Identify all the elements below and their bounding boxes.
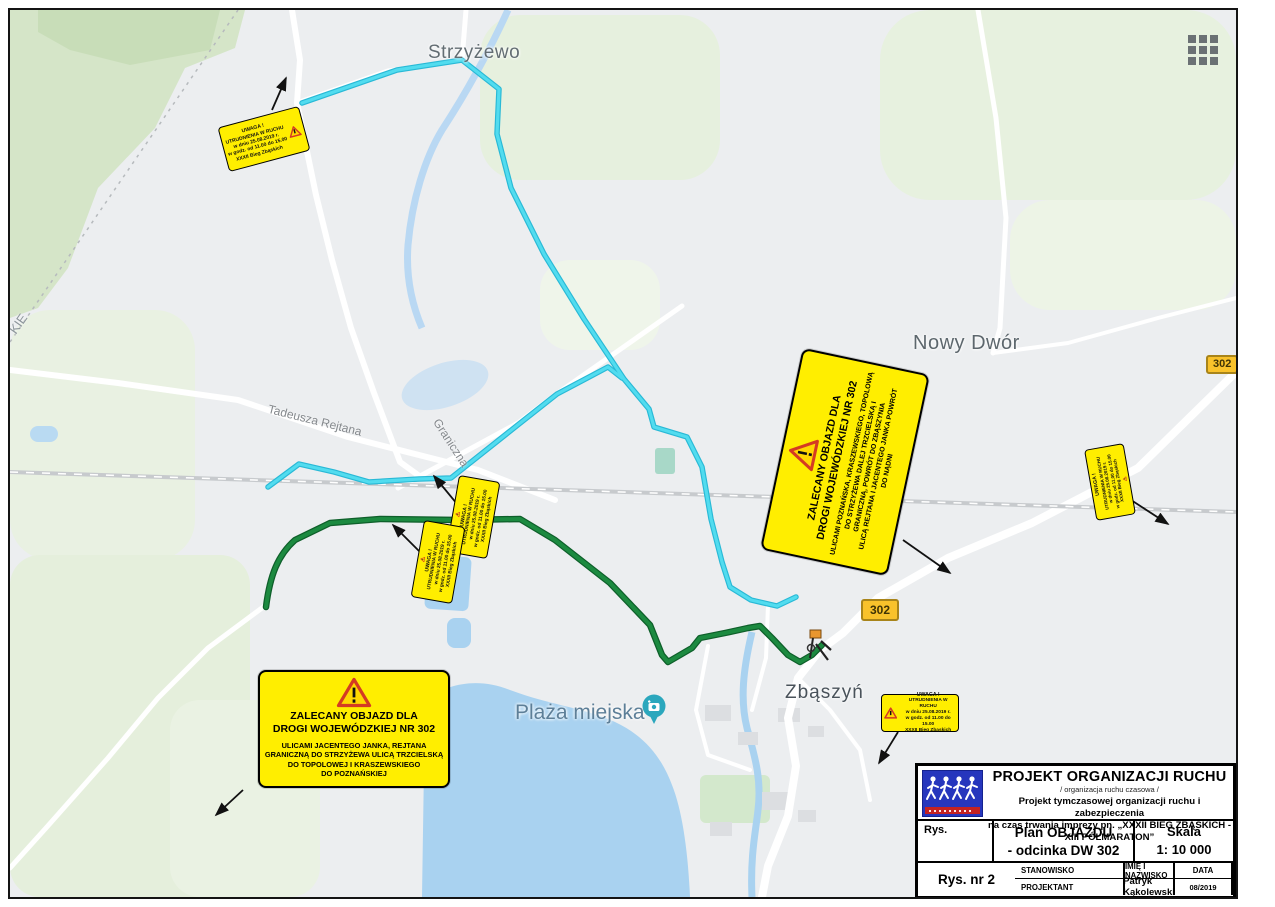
road-shield-302-north: 302	[1206, 355, 1238, 374]
project-subtitle: / organizacja ruchu czasowa /	[986, 785, 1233, 794]
sign-title-line: DROGI WOJEWÓDZKIEJ NR 302	[260, 723, 448, 736]
sign-body-line: DO TOPOLOWEJ I KRASZEWSKIEGO	[260, 760, 448, 770]
small-warning-sign-5: UWAGA ! UTRUDNIENIA W RUCHU w dniu 25.08…	[881, 694, 959, 732]
project-desc-line: Projekt tymczasowej organizacji ruchu i …	[986, 796, 1233, 820]
place-label-strzyzewo: Strzyżewo	[428, 42, 520, 64]
rys-label: Rys.	[918, 821, 994, 861]
warning-triangle-icon	[884, 707, 897, 719]
col-position-header: STANOWISKO	[1015, 863, 1125, 879]
map-frame: Strzyżewo Nowy Dwór Zbąszyń Plaża miejsk…	[8, 8, 1238, 899]
title-block-header: PROJEKT ORGANIZACJI RUCHU / organizacja …	[918, 766, 1233, 821]
designer-name: Patryk Kąkolewski	[1125, 879, 1175, 895]
role-cell: PROJEKTANT	[1015, 879, 1125, 895]
sign-body-line: ULICAMI JACENTEGO JANKA, REJTANA	[260, 741, 448, 751]
warning-triangle-icon	[785, 433, 820, 472]
road-shield-302-town: 302	[861, 599, 899, 621]
apps-grid-icon[interactable]	[1188, 35, 1218, 65]
place-label-zbaszyn: Zbąszyń	[785, 682, 864, 704]
camera-pin-icon[interactable]	[641, 694, 667, 726]
sign-body-line: DO POZNAŃSKIEJ	[260, 769, 448, 779]
traffic-plan-page: Strzyżewo Nowy Dwór Zbąszyń Plaża miejsk…	[0, 0, 1275, 907]
warning-triangle-icon	[1122, 474, 1128, 486]
runners-logo	[922, 770, 983, 817]
place-label-nowy-dwor: Nowy Dwór	[913, 332, 1020, 355]
project-title: PROJEKT ORGANIZACJI RUCHU	[986, 769, 1233, 785]
sign-title-line: ZALECANY OBJAZD DLA	[260, 710, 448, 723]
detour-sign-southwest: ZALECANY OBJAZD DLA DROGI WOJEWÓDZKIEJ N…	[258, 670, 450, 788]
title-block: PROJEKT ORGANIZACJI RUCHU / organizacja …	[915, 763, 1236, 899]
project-desc-line: na czas trwania imprezy pn. „XXXII BIEG …	[986, 820, 1233, 844]
poi-label-plaza-miejska: Plaża miejska	[515, 701, 645, 725]
col-date-header: DATA	[1175, 863, 1233, 879]
sign-body-line: GRANICZNĄ DO STRZYŻEWA ULICĄ TRZCIELSKĄ	[260, 750, 448, 760]
warning-triangle-icon	[287, 124, 302, 138]
warning-triangle-icon	[336, 677, 372, 708]
drawing-number: Rys. nr 2	[918, 863, 1015, 895]
date-cell: 08/2019	[1175, 879, 1233, 895]
